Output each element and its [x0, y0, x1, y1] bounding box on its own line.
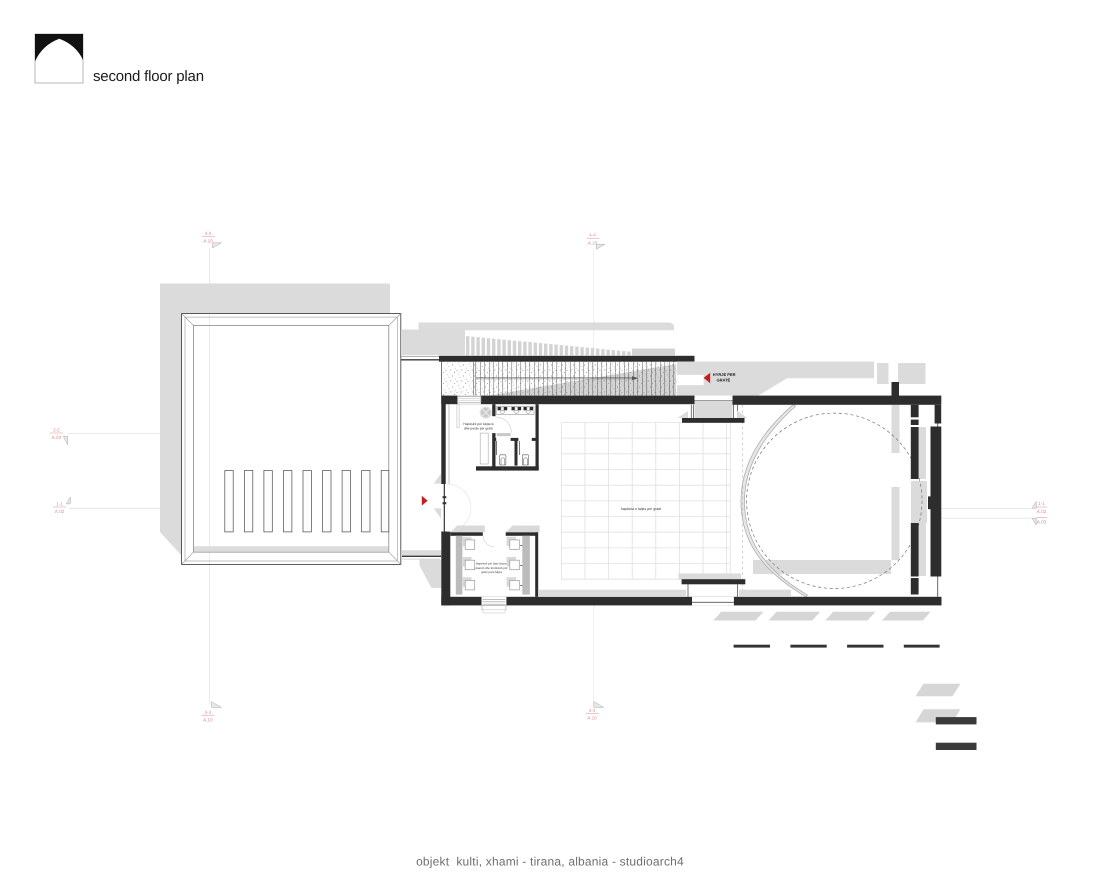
- svg-text:gratë para faljes: gratë para faljes: [481, 571, 502, 574]
- svg-text:hapësira e faljes për gratë: hapësira e faljes për gratë: [621, 507, 662, 511]
- svg-text:second floor plan: second floor plan: [93, 68, 204, 85]
- svg-text:1-1: 1-1: [1038, 502, 1045, 507]
- svg-text:A.10: A.10: [203, 239, 213, 244]
- svg-text:2-2: 2-2: [53, 428, 60, 433]
- svg-text:objekt kulti, xhami - tirana,: objekt kulti, xhami - tirana, albania - …: [416, 855, 684, 869]
- svg-text:GRATË: GRATË: [717, 378, 731, 383]
- svg-text:A.02: A.02: [55, 510, 65, 515]
- svg-text:dhe perde për gratë: dhe perde për gratë: [464, 427, 493, 431]
- svg-text:4-4: 4-4: [589, 708, 596, 713]
- svg-text:Hapësirë për larje fytyre,: Hapësirë për larje fytyre,: [476, 562, 508, 565]
- svg-text:A.03: A.03: [52, 436, 62, 441]
- svg-text:1-1: 1-1: [56, 502, 63, 507]
- svg-text:A.03: A.03: [1037, 520, 1047, 525]
- svg-text:A.10: A.10: [203, 718, 213, 723]
- svg-text:3-3: 3-3: [205, 231, 212, 236]
- svg-text:A.10: A.10: [587, 716, 597, 721]
- svg-text:Hapësirë për këpucë: Hapësirë për këpucë: [463, 422, 494, 426]
- svg-text:duarsh dhe këmbësh për: duarsh dhe këmbësh për: [475, 566, 507, 569]
- svg-text:HYRJE PER: HYRJE PER: [713, 373, 736, 377]
- svg-text:A.02: A.02: [1037, 509, 1047, 514]
- svg-text:4-4: 4-4: [589, 233, 596, 238]
- svg-text:3-3: 3-3: [204, 710, 211, 715]
